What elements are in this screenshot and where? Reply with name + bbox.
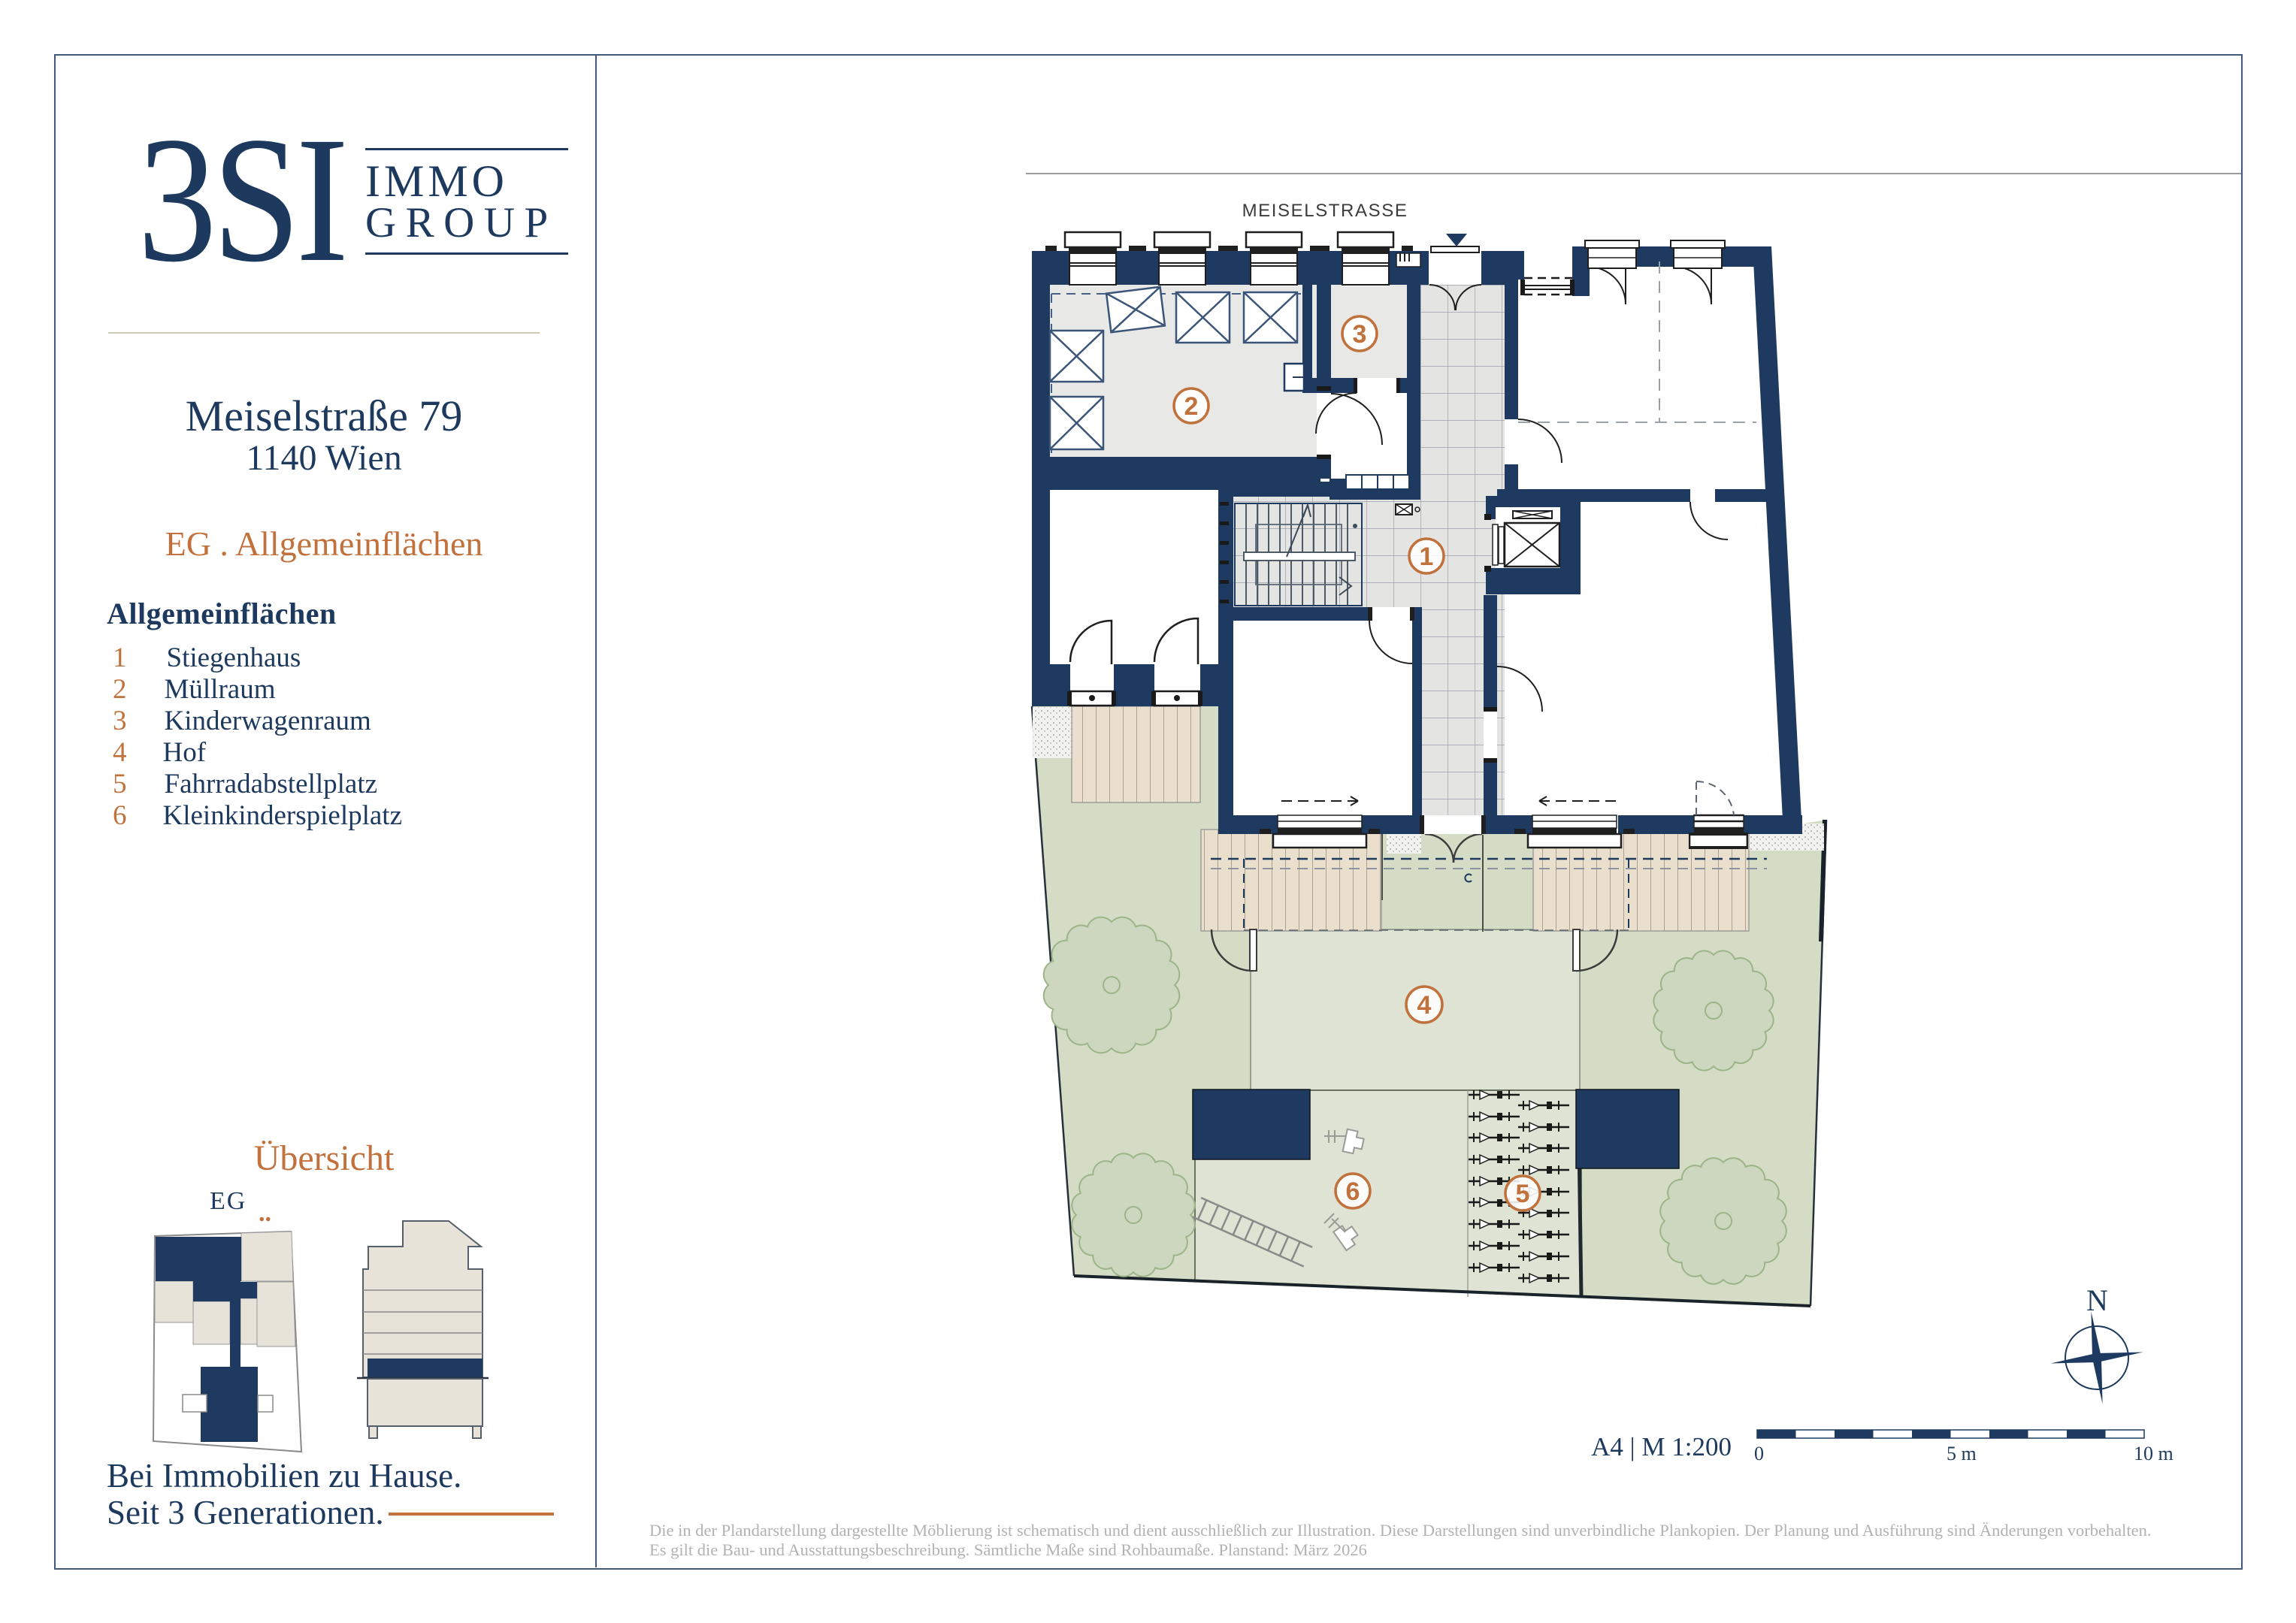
svg-text:6: 6 bbox=[1346, 1177, 1360, 1206]
svg-text:2: 2 bbox=[1184, 392, 1199, 421]
svg-text:1: 1 bbox=[1420, 543, 1434, 571]
svg-text:N: N bbox=[2086, 1283, 2108, 1317]
svg-text:3: 3 bbox=[1353, 320, 1367, 349]
svg-text:5: 5 bbox=[1516, 1180, 1530, 1208]
svg-text:4: 4 bbox=[1417, 991, 1432, 1020]
